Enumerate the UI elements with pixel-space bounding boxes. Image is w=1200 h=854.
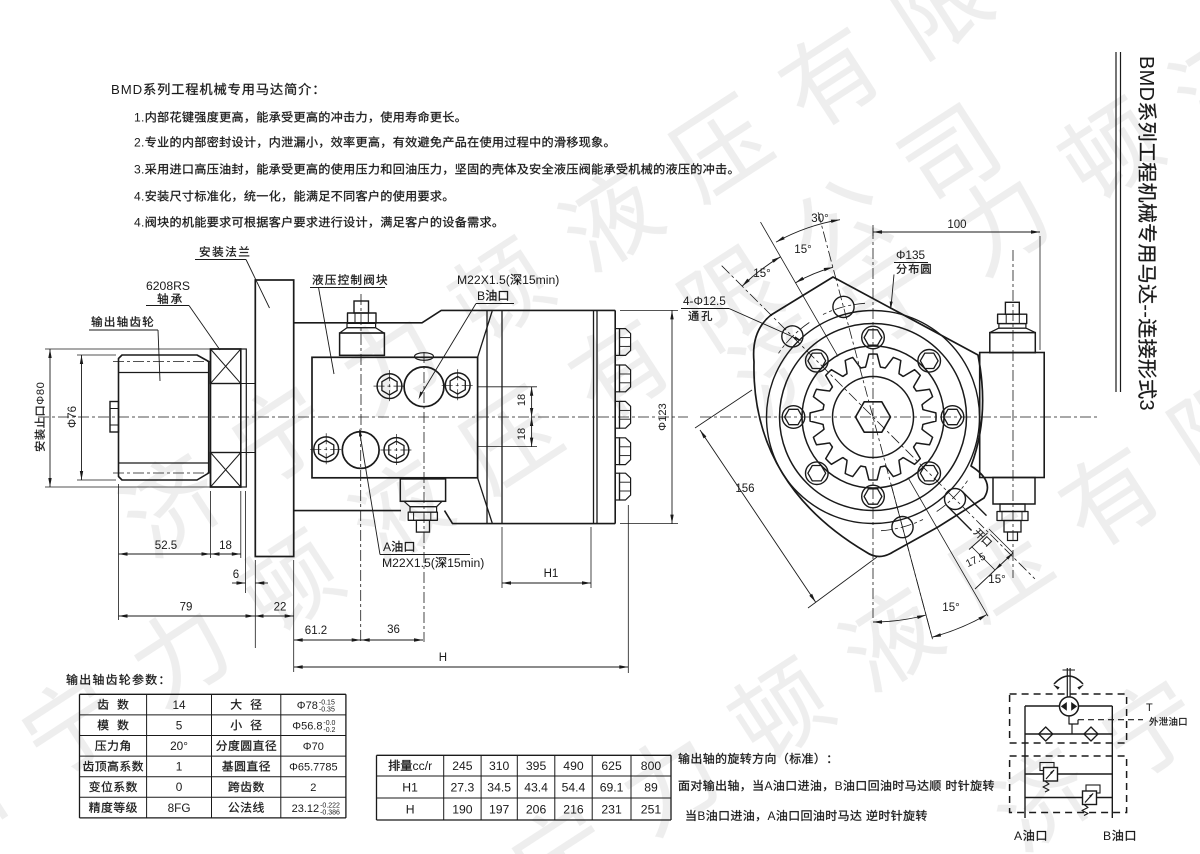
svg-text:0: 0: [176, 780, 183, 794]
svg-text:B: B: [1103, 829, 1112, 843]
svg-text:15min): 15min): [522, 273, 559, 287]
svg-text:15min): 15min): [447, 556, 484, 570]
svg-text:Φ80: Φ80: [35, 382, 47, 405]
svg-text:20°: 20°: [170, 739, 188, 753]
svg-text:43.4: 43.4: [524, 780, 548, 794]
svg-text:4-Φ12.5: 4-Φ12.5: [683, 294, 726, 308]
svg-text:M22X1.5(: M22X1.5(: [382, 556, 435, 570]
svg-text:BMD: BMD: [111, 82, 143, 97]
svg-text:18: 18: [219, 540, 232, 552]
svg-text:15°: 15°: [942, 602, 959, 614]
svg-text:2.: 2.: [134, 136, 145, 150]
svg-text:H1: H1: [402, 780, 418, 794]
svg-text:206: 206: [526, 802, 547, 816]
svg-text:-0.222: -0.222: [320, 802, 340, 809]
svg-text:cc/r: cc/r: [413, 759, 433, 773]
svg-text:5: 5: [176, 718, 183, 732]
svg-text:6: 6: [233, 569, 239, 581]
svg-text:Φ123: Φ123: [657, 403, 669, 431]
svg-text:100: 100: [947, 219, 966, 231]
svg-text:-0.2: -0.2: [323, 727, 335, 734]
svg-text:15°: 15°: [794, 244, 811, 256]
svg-text:A: A: [383, 540, 392, 554]
svg-text:H: H: [406, 802, 415, 816]
svg-text:--: --: [1135, 304, 1157, 318]
svg-text:B: B: [697, 809, 705, 823]
svg-text:-0.15: -0.15: [319, 699, 335, 706]
svg-text:22: 22: [274, 602, 287, 614]
svg-text:Φ65.7785: Φ65.7785: [289, 762, 338, 774]
svg-text:89: 89: [644, 780, 658, 794]
svg-text:1.: 1.: [134, 111, 145, 125]
svg-text:15°: 15°: [988, 574, 1005, 586]
svg-text:61.2: 61.2: [305, 625, 327, 637]
svg-text:216: 216: [563, 802, 584, 816]
svg-text:Φ135: Φ135: [896, 248, 926, 262]
svg-text:156: 156: [735, 483, 754, 495]
svg-text:Φ76: Φ76: [67, 406, 79, 428]
svg-text:A: A: [765, 779, 773, 793]
svg-text:310: 310: [489, 759, 510, 773]
svg-text:T: T: [1146, 702, 1153, 714]
svg-text:18: 18: [516, 428, 528, 440]
svg-text:245: 245: [452, 759, 473, 773]
svg-text:M22X1.5(: M22X1.5(: [457, 273, 510, 287]
svg-text:4.: 4.: [134, 216, 145, 230]
svg-text:54.4: 54.4: [562, 780, 586, 794]
svg-text:36: 36: [387, 624, 400, 636]
svg-text:Φ78: Φ78: [297, 700, 318, 712]
svg-text:251: 251: [641, 802, 662, 816]
svg-text:-0.0: -0.0: [323, 720, 335, 727]
svg-text:15°: 15°: [753, 268, 770, 280]
svg-text:52.5: 52.5: [155, 540, 177, 552]
svg-text:625: 625: [601, 759, 622, 773]
svg-text:2: 2: [310, 782, 316, 794]
svg-text:3: 3: [1135, 400, 1157, 411]
svg-text:79: 79: [180, 602, 193, 614]
svg-text:BMD: BMD: [1135, 56, 1157, 101]
svg-text:8FG: 8FG: [168, 801, 191, 815]
svg-text:H1: H1: [544, 568, 559, 580]
svg-text:14: 14: [173, 698, 187, 712]
svg-text:1: 1: [176, 760, 183, 774]
svg-text:800: 800: [641, 759, 662, 773]
svg-text:-0.386: -0.386: [320, 809, 340, 816]
svg-text:Φ56.8: Φ56.8: [292, 720, 322, 732]
svg-text:3.: 3.: [134, 163, 145, 177]
svg-text:B: B: [835, 779, 843, 793]
svg-text:-0.35: -0.35: [319, 706, 335, 713]
svg-text:190: 190: [452, 802, 473, 816]
svg-text:6208RS: 6208RS: [146, 279, 190, 293]
svg-text:A: A: [1014, 829, 1023, 843]
svg-text:23.12: 23.12: [292, 803, 320, 815]
svg-text:30°: 30°: [811, 213, 828, 225]
svg-text:69.1: 69.1: [600, 780, 624, 794]
svg-text:Φ70: Φ70: [303, 741, 324, 753]
svg-text:4.: 4.: [134, 190, 145, 204]
svg-text:B: B: [477, 289, 485, 303]
svg-text:34.5: 34.5: [487, 780, 511, 794]
svg-text:231: 231: [601, 802, 622, 816]
svg-text:395: 395: [526, 759, 547, 773]
svg-text:18: 18: [516, 394, 528, 406]
svg-text:27.3: 27.3: [451, 780, 475, 794]
svg-text:197: 197: [489, 802, 510, 816]
svg-text:490: 490: [563, 759, 584, 773]
svg-text:A: A: [768, 809, 776, 823]
svg-text:H: H: [439, 652, 447, 664]
